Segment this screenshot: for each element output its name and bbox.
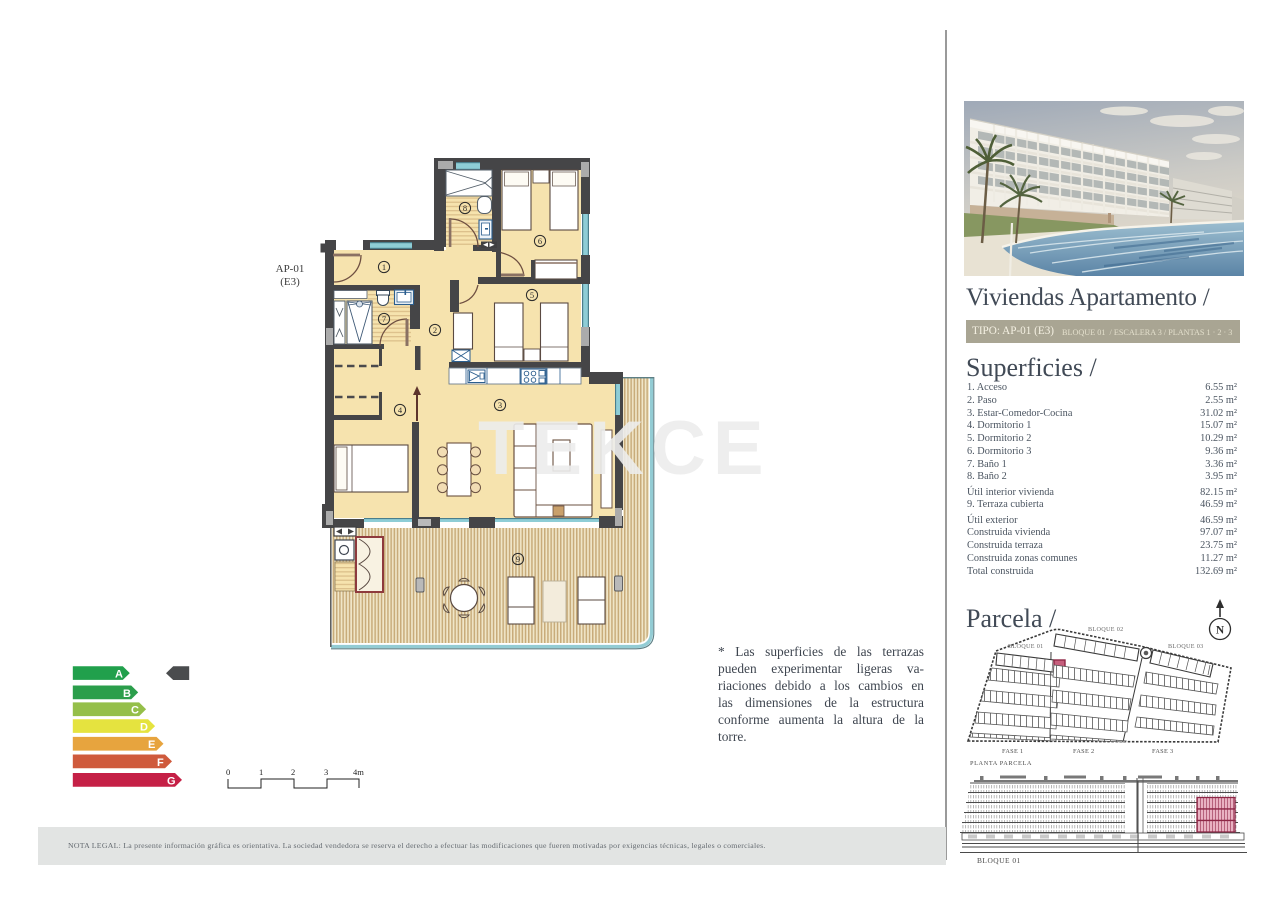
svg-text:1: 1	[259, 767, 263, 777]
svg-text:1: 1	[382, 262, 386, 272]
svg-text:FASE 1: FASE 1	[1002, 748, 1023, 755]
svg-text:TEKCE: TEKCE	[478, 406, 771, 491]
svg-text:G: G	[167, 775, 176, 787]
svg-text:BLOQUE 03: BLOQUE 03	[1168, 643, 1204, 650]
svg-text:E: E	[148, 739, 155, 751]
svg-text:2: 2	[291, 767, 295, 777]
svg-text:FASE 2: FASE 2	[1073, 748, 1094, 755]
svg-text:BLOQUE 01: BLOQUE 01	[977, 856, 1021, 865]
svg-text:PLANTA PARCELA: PLANTA PARCELA	[970, 760, 1032, 767]
svg-text:BLOQUE 02: BLOQUE 02	[1088, 626, 1124, 633]
svg-text:AP-01: AP-01	[276, 263, 305, 275]
svg-text:9: 9	[516, 554, 520, 564]
svg-text:8: 8	[463, 203, 467, 213]
svg-text:F: F	[157, 757, 164, 769]
svg-text:B: B	[123, 688, 131, 700]
svg-text:D: D	[140, 722, 148, 734]
svg-text:2: 2	[433, 325, 437, 335]
svg-text:3: 3	[324, 767, 328, 777]
svg-text:0: 0	[226, 767, 230, 777]
svg-text:7: 7	[382, 314, 386, 324]
svg-text:A: A	[115, 669, 123, 681]
svg-text:4m: 4m	[353, 767, 364, 777]
svg-text:C: C	[131, 705, 139, 717]
svg-text:5: 5	[530, 290, 534, 300]
svg-text:FASE 3: FASE 3	[1152, 748, 1173, 755]
svg-text:(E3): (E3)	[280, 276, 300, 288]
svg-text:6: 6	[538, 236, 542, 246]
svg-text:BLOQUE 01: BLOQUE 01	[1008, 643, 1044, 650]
